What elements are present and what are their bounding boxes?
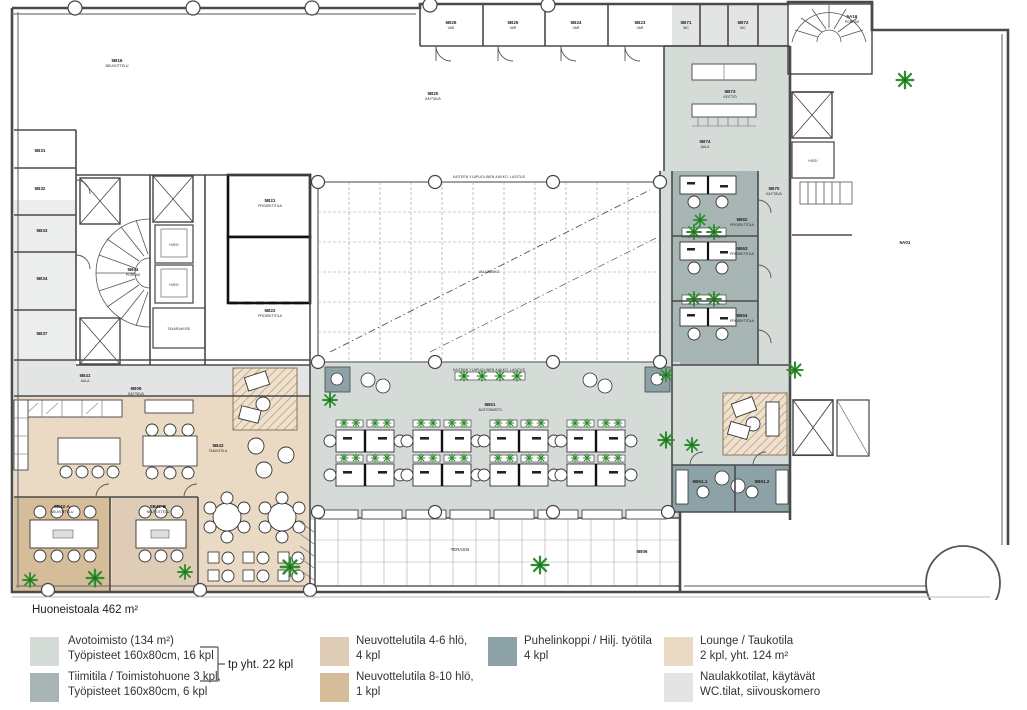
svg-text:PROJEKTITILA: PROJEKTITILA bbox=[258, 204, 282, 208]
svg-text:VAR: VAR bbox=[448, 26, 455, 30]
svg-text:5B42-A: 5B42-A bbox=[54, 504, 71, 509]
floor-area-title: Huoneistoala 462 m² bbox=[32, 604, 138, 616]
svg-text:PROJEKTITILA: PROJEKTITILA bbox=[730, 252, 754, 256]
svg-text:5B61.2: 5B61.2 bbox=[755, 479, 770, 484]
svg-text:NEUVOTTELU: NEUVOTTELU bbox=[106, 64, 129, 68]
svg-text:5B64: 5B64 bbox=[737, 313, 748, 318]
workstation-total-bracket: tp yht. 22 kpl bbox=[192, 641, 322, 691]
svg-text:KÄYTÄVÄ: KÄYTÄVÄ bbox=[766, 192, 782, 196]
legend-label-neuvottelu810: Neuvottelutila 8-10 hlö,1 kpl bbox=[356, 670, 474, 700]
svg-text:NEUVOTTELU: NEUVOTTELU bbox=[147, 510, 170, 514]
svg-text:5B37: 5B37 bbox=[37, 331, 48, 336]
svg-text:5B04: 5B04 bbox=[128, 267, 139, 272]
svg-text:HISSI: HISSI bbox=[169, 243, 179, 247]
svg-text:5B22: 5B22 bbox=[265, 308, 276, 313]
svg-text:5B71: 5B71 bbox=[681, 20, 692, 25]
stair-flight bbox=[800, 182, 852, 204]
svg-text:5B74: 5B74 bbox=[700, 139, 711, 144]
svg-text:NEUVOTTELU: NEUVOTTELU bbox=[51, 510, 74, 514]
svg-text:KÄYTÄVÄ: KÄYTÄVÄ bbox=[128, 392, 144, 396]
svg-text:tp yht. 22 kpl: tp yht. 22 kpl bbox=[228, 659, 293, 671]
svg-text:HISSI: HISSI bbox=[169, 283, 179, 287]
legend-label-neuvottelu46: Neuvottelutila 4-6 hlö,4 kpl bbox=[356, 634, 467, 664]
legend-label-lounge: Lounge / Taukotila2 kpl, yht. 124 m² bbox=[700, 634, 793, 664]
svg-text:5B20: 5B20 bbox=[428, 91, 439, 96]
svg-text:5B70: 5B70 bbox=[769, 186, 780, 191]
svg-text:WC: WC bbox=[740, 26, 746, 30]
svg-text:5B41: 5B41 bbox=[80, 373, 91, 378]
svg-text:VAR: VAR bbox=[637, 26, 644, 30]
svg-text:5B25: 5B25 bbox=[508, 20, 519, 25]
legend-swatch-tiimitila bbox=[30, 673, 59, 702]
svg-text:5B31: 5B31 bbox=[35, 148, 46, 153]
svg-text:AULA: AULA bbox=[81, 379, 91, 383]
svg-text:PROJEKTITILA: PROJEKTITILA bbox=[730, 319, 754, 323]
svg-text:AVOTOIMISTO: AVOTOIMISTO bbox=[478, 408, 502, 412]
svg-text:KÄYTÄVÄ: KÄYTÄVÄ bbox=[425, 97, 441, 101]
terrace bbox=[300, 510, 680, 586]
legend-swatch-puhelinkoppi bbox=[488, 637, 517, 666]
svg-text:WC: WC bbox=[683, 26, 689, 30]
svg-text:5A16: 5A16 bbox=[847, 14, 858, 19]
svg-text:TERASSI: TERASSI bbox=[451, 547, 470, 552]
svg-text:VAR: VAR bbox=[510, 26, 517, 30]
legend-swatch-lounge bbox=[664, 637, 693, 666]
legend-swatch-neuvottelu46 bbox=[320, 637, 349, 666]
svg-text:5B73: 5B73 bbox=[725, 89, 736, 94]
svg-text:AULA: AULA bbox=[701, 145, 711, 149]
legend-swatch-avotoimisto bbox=[30, 637, 59, 666]
svg-text:PROJEKTITILA: PROJEKTITILA bbox=[730, 223, 754, 227]
svg-text:VAR: VAR bbox=[573, 26, 580, 30]
svg-text:5B21: 5B21 bbox=[265, 198, 276, 203]
svg-text:TAVARAHISSI: TAVARAHISSI bbox=[167, 327, 190, 331]
legend-label-puhelinkoppi: Puhelinkoppi / Hilj. työtila4 kpl bbox=[524, 634, 652, 664]
svg-text:5B43: 5B43 bbox=[213, 443, 224, 448]
legend-swatch-neuvottelu810 bbox=[320, 673, 349, 702]
svg-text:PROJEKTITILA: PROJEKTITILA bbox=[258, 314, 282, 318]
floor-plan-page: 5B16 NEUVOTTELU 5B20 KÄYTÄVÄ 5B26 VAR 5B… bbox=[0, 0, 1027, 710]
svg-text:KAITEEN YLÄPUOLINEN AUKKO, LAS: KAITEEN YLÄPUOLINEN AUKKO, LASITUS bbox=[453, 175, 525, 179]
svg-text:5A01: 5A01 bbox=[900, 240, 911, 245]
svg-text:5B23: 5B23 bbox=[635, 20, 646, 25]
svg-text:PORRAS: PORRAS bbox=[126, 273, 141, 277]
svg-text:HISSI: HISSI bbox=[808, 159, 818, 163]
svg-text:5B72: 5B72 bbox=[738, 20, 749, 25]
svg-text:PORRAS: PORRAS bbox=[845, 20, 860, 24]
svg-text:KAITEEN YLÄPUOLINEN AUKKO, LAS: KAITEEN YLÄPUOLINEN AUKKO, LASITUS bbox=[453, 368, 525, 372]
svg-text:5B24: 5B24 bbox=[571, 20, 582, 25]
svg-text:5B61: 5B61 bbox=[485, 402, 496, 407]
svg-text:5B34: 5B34 bbox=[37, 276, 48, 281]
svg-text:TAUKOTILA: TAUKOTILA bbox=[209, 449, 228, 453]
svg-text:5B42-B: 5B42-B bbox=[150, 504, 167, 509]
svg-text:KEITTIÖ: KEITTIÖ bbox=[723, 95, 737, 99]
svg-text:5B26: 5B26 bbox=[446, 20, 457, 25]
legend-label-naulakkotilat: Naulakkotilat, käytävätWC.tilat, siivous… bbox=[700, 670, 820, 700]
svg-text:VALOAUKKO: VALOAUKKO bbox=[479, 270, 500, 274]
svg-text:5B16: 5B16 bbox=[112, 58, 123, 63]
svg-text:5B61.1: 5B61.1 bbox=[693, 479, 708, 484]
svg-text:5B06: 5B06 bbox=[637, 549, 648, 554]
svg-text:5B32: 5B32 bbox=[35, 186, 46, 191]
legend-swatch-naulakkotilat bbox=[664, 673, 693, 702]
svg-text:5B62: 5B62 bbox=[737, 217, 748, 222]
svg-text:5B33: 5B33 bbox=[37, 228, 48, 233]
floor-plan-drawing: 5B16 NEUVOTTELU 5B20 KÄYTÄVÄ 5B26 VAR 5B… bbox=[0, 0, 1027, 600]
svg-text:5B09: 5B09 bbox=[131, 386, 142, 391]
svg-text:5B63: 5B63 bbox=[737, 246, 748, 251]
